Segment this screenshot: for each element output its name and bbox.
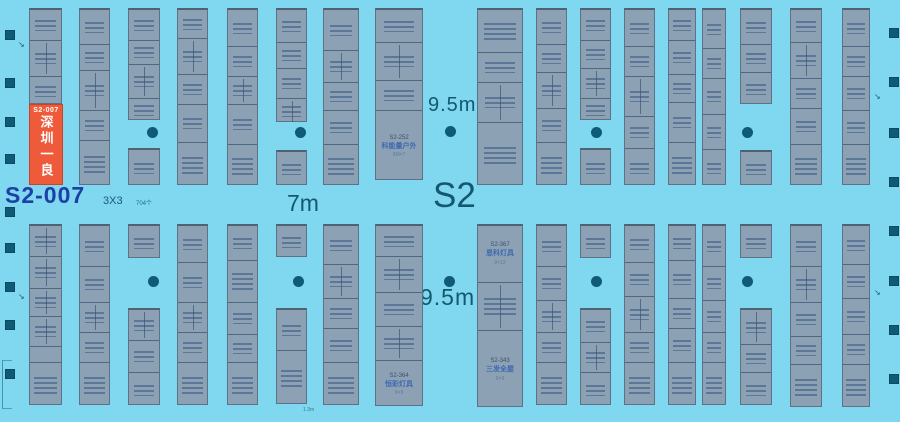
booth-cell[interactable]	[537, 44, 566, 72]
booth-cell[interactable]	[537, 332, 566, 362]
booth-text-placeholder	[484, 23, 517, 40]
booth-cell[interactable]	[581, 310, 610, 342]
booth-cell[interactable]	[741, 72, 771, 106]
booth-spec-text: 9×9	[496, 376, 504, 382]
booth-text-placeholder	[542, 53, 561, 64]
booth-cell[interactable]	[581, 40, 610, 68]
booth-text-placeholder	[282, 21, 301, 32]
booth-text-placeholder	[384, 90, 414, 101]
booth-cell[interactable]	[625, 226, 654, 262]
booth-cell[interactable]	[791, 42, 821, 78]
booth-text-placeholder	[796, 88, 816, 99]
booth-text-placeholder	[34, 377, 57, 394]
booth-strip	[323, 224, 359, 405]
booth-cell[interactable]	[376, 10, 422, 42]
booth-strip	[624, 8, 655, 185]
booth-cell[interactable]	[703, 266, 725, 300]
booth-text-placeholder	[330, 61, 352, 72]
booth-cell[interactable]	[741, 310, 771, 344]
booth-cell[interactable]	[30, 10, 61, 40]
booth-strip	[842, 224, 870, 407]
booth-text-placeholder	[746, 164, 766, 175]
booth-cell[interactable]	[277, 350, 306, 406]
booth-cell[interactable]	[178, 262, 207, 302]
booth-cell[interactable]	[324, 82, 358, 110]
booth-cell[interactable]	[581, 226, 610, 260]
booth-text-placeholder	[281, 370, 302, 387]
booth-text-placeholder	[484, 147, 517, 164]
booth-cell[interactable]	[324, 362, 358, 407]
booth-text-placeholder	[630, 127, 649, 138]
booth-text-placeholder	[586, 163, 605, 174]
booth-cell[interactable]: S2-364恒彩灯具9×9	[376, 360, 422, 408]
booth-text-placeholder	[330, 340, 352, 351]
booth-text-placeholder	[707, 91, 722, 102]
booth-text-placeholder	[85, 120, 104, 131]
booth-strip	[580, 224, 611, 258]
booth-cell[interactable]	[178, 104, 207, 142]
booth-cell[interactable]	[791, 226, 821, 266]
booth-text-placeholder	[630, 91, 649, 102]
highlighted-booth-id: S2-007	[33, 107, 59, 114]
booth-cell[interactable]	[277, 226, 306, 259]
booth-text-placeholder	[706, 377, 722, 394]
booth-text-placeholder	[542, 342, 561, 353]
booth-text-placeholder	[796, 279, 816, 290]
booth-cell[interactable]	[669, 260, 695, 298]
booth-cell[interactable]	[625, 46, 654, 76]
booth-cell[interactable]	[30, 76, 61, 106]
booth-cell[interactable]	[703, 78, 725, 114]
booth-cell[interactable]	[791, 144, 821, 187]
booth-cell[interactable]	[478, 82, 522, 122]
booth-cell[interactable]	[669, 298, 695, 328]
booth-cell[interactable]	[30, 256, 61, 288]
booth-strip	[842, 8, 870, 185]
booth-cell[interactable]	[581, 68, 610, 98]
booth-cell[interactable]	[228, 362, 257, 407]
booth-cell[interactable]	[324, 10, 358, 50]
booth-cell[interactable]	[791, 364, 821, 409]
pillar-square	[5, 117, 15, 127]
booth-text-placeholder	[35, 236, 55, 247]
booth-cell[interactable]	[324, 328, 358, 362]
booth-cell[interactable]	[376, 226, 422, 256]
booth-text-placeholder	[183, 277, 202, 288]
booth-cell[interactable]	[625, 116, 654, 148]
booth-cell[interactable]	[791, 108, 821, 144]
booth-strip	[177, 8, 208, 185]
booth-cell[interactable]	[228, 226, 257, 260]
booth-text-placeholder	[183, 312, 202, 323]
booth-cell[interactable]	[669, 74, 695, 102]
hall-label: S2	[433, 176, 476, 216]
column-dot	[591, 276, 602, 287]
booth-text-placeholder	[629, 377, 650, 394]
booth-cell[interactable]	[80, 140, 109, 187]
booth-strip	[790, 8, 822, 185]
booth-cell[interactable]	[703, 149, 725, 187]
booth-cell[interactable]	[228, 104, 257, 144]
booth-text-placeholder	[673, 238, 690, 249]
booth-cell[interactable]	[843, 46, 869, 76]
booth-strip	[323, 8, 359, 185]
booth-text-placeholder	[134, 238, 154, 249]
booth-text-placeholder	[233, 23, 252, 34]
booth-text-placeholder	[746, 84, 766, 95]
booth-strip	[79, 224, 110, 405]
booth-text-placeholder	[847, 56, 864, 67]
booth-cell[interactable]	[625, 148, 654, 187]
booth-cell[interactable]	[843, 334, 869, 364]
pillar-square	[5, 369, 15, 379]
column-dot	[293, 276, 304, 287]
pillar-square	[5, 78, 15, 88]
booth-cell[interactable]	[537, 108, 566, 142]
booth-text-placeholder	[330, 276, 352, 287]
booth-cell[interactable]	[376, 42, 422, 80]
booth-cell[interactable]	[30, 40, 61, 76]
pillar-square	[889, 276, 899, 286]
booth-cell[interactable]	[324, 226, 358, 264]
booth-text-placeholder	[630, 274, 649, 285]
booth-cell[interactable]	[537, 300, 566, 332]
booth-cell[interactable]	[843, 76, 869, 110]
booth-cell[interactable]	[129, 372, 159, 407]
booth-cell[interactable]	[843, 226, 869, 264]
booth-cell[interactable]	[376, 326, 422, 360]
booth-text-placeholder	[746, 53, 766, 64]
booth-cell[interactable]	[376, 80, 422, 110]
booth-cell[interactable]	[324, 144, 358, 187]
booth-cell[interactable]	[129, 98, 159, 122]
booth-cell[interactable]	[228, 76, 257, 104]
booth-cell[interactable]	[478, 52, 522, 82]
booth-cell[interactable]	[843, 10, 869, 46]
booth-text-placeholder	[586, 385, 605, 396]
booth-cell[interactable]	[80, 44, 109, 70]
booth-name-text: 恒彩灯具	[385, 381, 413, 389]
booth-cell[interactable]	[30, 316, 61, 346]
booth-cell[interactable]	[277, 10, 306, 42]
booth-text-placeholder	[85, 85, 104, 96]
booth-strip	[128, 308, 160, 405]
booth-text-placeholder	[673, 20, 690, 31]
booth-cell[interactable]	[30, 346, 61, 362]
booth-cell[interactable]	[324, 110, 358, 144]
booth-text-placeholder	[796, 241, 816, 252]
booth-text-placeholder	[330, 25, 352, 36]
booth-cell[interactable]	[843, 364, 869, 409]
booth-cell[interactable]	[791, 10, 821, 42]
booth-cell[interactable]	[228, 10, 257, 46]
booth-cell[interactable]	[478, 10, 522, 52]
booth-cell[interactable]	[703, 10, 725, 48]
booth-cell[interactable]	[178, 362, 207, 407]
booth-text-placeholder	[673, 274, 690, 285]
booth-cell[interactable]	[324, 50, 358, 82]
booth-cell[interactable]	[178, 74, 207, 104]
booth-cell[interactable]	[669, 328, 695, 362]
booth-text-placeholder	[707, 24, 722, 35]
booth-cell[interactable]	[129, 10, 159, 40]
booth-cell[interactable]	[581, 342, 610, 372]
booth-text-placeholder	[673, 340, 690, 351]
booth-strip	[624, 224, 655, 405]
booth-cell[interactable]	[741, 10, 771, 44]
booth-cell[interactable]	[228, 302, 257, 334]
booth-cell[interactable]	[581, 372, 610, 407]
booth-strip	[536, 8, 567, 185]
aisle-width-7m-label: 7m	[287, 190, 319, 217]
booth-spec-text: 9×12	[494, 260, 505, 266]
booth-text-placeholder	[586, 49, 605, 60]
booth-cell[interactable]	[741, 226, 771, 260]
booth-cell[interactable]	[478, 282, 522, 330]
booth-cell[interactable]	[791, 78, 821, 108]
booth-cell[interactable]	[228, 46, 257, 76]
booth-cell[interactable]	[625, 262, 654, 296]
booth-label: S2-252科能量户外9M×7	[382, 135, 417, 159]
booth-size-label: 3X3	[103, 195, 123, 207]
booth-strip	[477, 8, 523, 185]
booth-cell[interactable]	[741, 152, 771, 187]
booth-strip	[177, 224, 208, 405]
booth-cell[interactable]	[129, 340, 159, 372]
booth-cell[interactable]	[277, 98, 306, 124]
booth-text-placeholder	[707, 127, 722, 138]
booth-cell[interactable]	[129, 226, 159, 260]
booth-text-placeholder	[673, 52, 690, 63]
booth-text-placeholder	[630, 23, 649, 34]
booth-strip	[740, 308, 772, 405]
booth-text-placeholder	[746, 238, 766, 249]
booth-cell[interactable]	[178, 142, 207, 187]
booth-cell[interactable]	[80, 302, 109, 332]
booth-text-placeholder	[183, 239, 202, 250]
booth-cell[interactable]	[324, 264, 358, 298]
pillar-square	[5, 207, 15, 217]
booth-cell[interactable]	[30, 226, 61, 256]
booth-text-placeholder	[35, 53, 55, 64]
booth-cell[interactable]	[625, 10, 654, 46]
booth-cell[interactable]	[178, 10, 207, 38]
booth-cell[interactable]	[625, 332, 654, 362]
booth-strip	[128, 224, 160, 258]
booth-text-placeholder	[134, 351, 154, 362]
booth-cell[interactable]	[669, 40, 695, 74]
column-dot	[444, 276, 455, 287]
booth-cell[interactable]	[478, 122, 522, 187]
booth-text-placeholder	[282, 78, 301, 89]
booth-cell[interactable]	[669, 142, 695, 187]
booth-text-placeholder	[847, 23, 864, 34]
edge-dimension-label: 1.3m	[303, 407, 314, 413]
booth-text-placeholder	[134, 76, 154, 87]
booth-cell[interactable]	[80, 362, 109, 407]
booth-cell[interactable]	[703, 332, 725, 362]
booth-strip	[668, 8, 696, 185]
booth-cell[interactable]	[178, 332, 207, 362]
booth-text-placeholder	[485, 62, 514, 73]
booth-cell[interactable]	[703, 300, 725, 332]
booth-strip	[29, 8, 62, 104]
booth-cell[interactable]: S2-252科能量户外9M×7	[376, 110, 422, 182]
pillar-square	[889, 226, 899, 236]
booth-text-placeholder	[542, 120, 561, 131]
pillar-square	[5, 154, 15, 164]
booth-strip	[702, 8, 726, 185]
booth-cell[interactable]	[80, 70, 109, 110]
booth-text-placeholder	[134, 47, 154, 58]
booth-strip	[276, 150, 307, 185]
booth-cell[interactable]	[30, 362, 61, 407]
booth-id-text: S2-343	[490, 358, 509, 365]
booth-text-placeholder	[542, 241, 561, 252]
booth-cell[interactable]	[843, 144, 869, 187]
booth-cell[interactable]	[277, 68, 306, 98]
pillar-square	[889, 325, 899, 335]
booth-cell[interactable]	[277, 42, 306, 68]
booth-cell[interactable]	[376, 292, 422, 326]
booth-cell[interactable]	[669, 102, 695, 142]
booth-name-text: 三发全屋	[486, 366, 514, 374]
booth-strip	[128, 148, 160, 185]
booth-cell[interactable]	[669, 10, 695, 40]
booth-text-placeholder	[183, 51, 202, 62]
booth-text-placeholder	[586, 20, 605, 31]
booth-cell[interactable]	[581, 10, 610, 40]
booth-strip	[276, 224, 307, 257]
highlighted-booth-s2-007[interactable]: S2-007 深圳一良	[29, 104, 63, 185]
column-dot	[742, 276, 753, 287]
booth-cell[interactable]	[791, 266, 821, 302]
booth-cell[interactable]	[537, 72, 566, 108]
booth-text-placeholder	[846, 158, 865, 175]
booth-text-placeholder	[233, 313, 252, 324]
booth-cell[interactable]	[625, 76, 654, 116]
booth-cell[interactable]	[129, 310, 159, 340]
booth-cell[interactable]	[129, 64, 159, 98]
booth-text-placeholder	[672, 377, 691, 394]
booth-text-placeholder	[630, 309, 649, 320]
booth-text-placeholder	[35, 86, 55, 97]
booth-text-placeholder	[746, 22, 766, 33]
booth-strip	[227, 224, 258, 405]
booth-name-text: 科能量户外	[382, 143, 417, 151]
booth-strip	[580, 8, 611, 120]
booth-count-label: 704个	[136, 198, 152, 207]
booth-text-placeholder	[84, 377, 105, 394]
pointer-arrow-icon: ↘	[18, 292, 25, 301]
pointer-arrow-icon: ↘	[18, 40, 25, 49]
booth-cell[interactable]	[669, 362, 695, 407]
booth-cell[interactable]	[178, 38, 207, 74]
pillar-square	[5, 320, 15, 330]
booth-cell[interactable]	[537, 142, 566, 187]
booth-cell[interactable]	[228, 334, 257, 362]
booth-cell[interactable]	[228, 144, 257, 187]
booth-text-placeholder	[85, 312, 104, 323]
booth-text-placeholder	[630, 342, 649, 353]
booth-text-placeholder	[328, 377, 353, 394]
booth-strip	[702, 224, 726, 405]
booth-cell[interactable]	[376, 256, 422, 292]
booth-text-placeholder	[328, 158, 353, 175]
booth-cell[interactable]	[741, 344, 771, 372]
booth-cell[interactable]	[625, 296, 654, 332]
booth-cell[interactable]	[537, 226, 566, 266]
booth-strip	[128, 8, 160, 120]
booth-cell[interactable]	[791, 302, 821, 336]
booth-cell[interactable]	[129, 150, 159, 187]
booth-text-placeholder	[35, 297, 55, 308]
booth-label: S2-343三发全屋9×9	[486, 358, 514, 382]
booth-cell[interactable]	[80, 110, 109, 140]
booth-cell[interactable]	[703, 362, 725, 407]
booth-text-placeholder	[707, 311, 722, 322]
booth-cell[interactable]	[30, 288, 61, 316]
booth-cell[interactable]	[178, 226, 207, 262]
booth-cell[interactable]	[277, 310, 306, 350]
pillar-square	[5, 30, 15, 40]
booth-cell[interactable]	[80, 332, 109, 362]
booth-text-placeholder	[35, 20, 55, 31]
booth-cell[interactable]	[80, 266, 109, 302]
booth-id-text: S2-364	[389, 373, 408, 380]
booth-cell[interactable]	[80, 226, 109, 266]
booth-cell[interactable]	[843, 110, 869, 144]
booth-cell[interactable]	[129, 40, 159, 64]
booth-cell[interactable]	[669, 226, 695, 260]
booth-cell[interactable]	[791, 336, 821, 364]
booth-strip: S2-367恩科灯具9×12S2-343三发全屋9×9	[477, 224, 523, 407]
booth-cell[interactable]	[741, 44, 771, 72]
booth-text-placeholder	[586, 105, 605, 116]
booth-strip: S2-364恒彩灯具9×9	[375, 224, 423, 406]
booth-text-placeholder	[233, 85, 252, 96]
booth-strip	[740, 224, 772, 258]
booth-cell[interactable]	[537, 10, 566, 44]
booth-cell[interactable]	[581, 150, 610, 187]
booth-cell[interactable]: S2-367恩科灯具9×12	[478, 226, 522, 282]
booth-cell[interactable]	[178, 302, 207, 332]
booth-cell[interactable]: S2-343三发全屋9×9	[478, 330, 522, 409]
booth-cell[interactable]	[703, 226, 725, 266]
booth-strip	[227, 8, 258, 185]
booth-cell[interactable]	[228, 260, 257, 302]
booth-text-placeholder	[183, 342, 202, 353]
booth-cell[interactable]	[324, 298, 358, 328]
booth-cell[interactable]	[843, 298, 869, 334]
booth-cell[interactable]	[581, 98, 610, 122]
booth-id-text: S2-367	[490, 242, 509, 249]
dimension-mark	[2, 360, 12, 409]
booth-cell[interactable]	[703, 48, 725, 78]
booth-cell[interactable]	[277, 152, 306, 187]
booth-cell[interactable]	[80, 10, 109, 44]
booth-cell[interactable]	[625, 362, 654, 407]
booth-spec-text: 9M×7	[393, 152, 406, 158]
booth-cell[interactable]	[537, 266, 566, 300]
booth-cell[interactable]	[741, 372, 771, 407]
booth-cell[interactable]	[537, 362, 566, 407]
pillar-square	[5, 243, 15, 253]
booth-text-placeholder	[35, 267, 55, 278]
booth-cell[interactable]	[703, 114, 725, 149]
booth-cell[interactable]	[843, 264, 869, 298]
booth-text-placeholder	[233, 56, 252, 67]
